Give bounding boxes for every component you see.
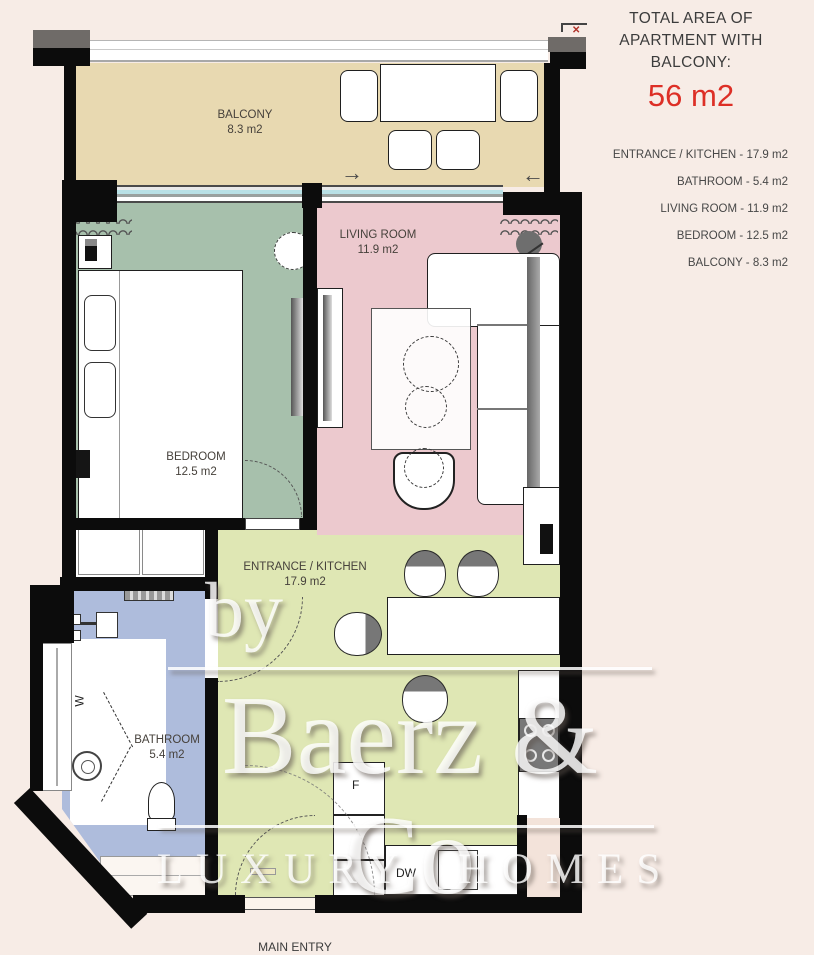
coffee-table-large: [403, 336, 459, 392]
bedroom-wardrobe: [291, 298, 303, 416]
bedroom-label: BEDROOM12.5 m2: [146, 450, 246, 480]
wall-kitchen-left-upper: [205, 527, 218, 599]
main-entry-label: MAIN ENTRY: [225, 940, 365, 954]
washer-label: W: [73, 695, 87, 706]
wall-kitchen-left-lower: [205, 678, 218, 897]
room-list-item: ENTRANCE / KITCHEN - 17.9 m2: [560, 142, 788, 169]
summary-title-line-2: APARTMENT WITH: [585, 30, 797, 52]
fridge-label: F: [352, 778, 359, 792]
hall-closet: [76, 527, 206, 577]
bedroom-door-opening: [245, 518, 300, 530]
shower-drain: [72, 751, 102, 781]
wall-strip-bottom-right: [517, 815, 527, 897]
bathroom-door-opening: [205, 599, 218, 678]
room-list-item: BALCONY - 8.3 m2: [560, 250, 788, 277]
dishwasher: [438, 850, 478, 890]
room-list-item: LIVING ROOM - 11.9 m2: [560, 196, 788, 223]
bedroom-radiator: [76, 450, 90, 478]
sofa-seats: [477, 325, 560, 505]
bar-counter: [387, 597, 560, 655]
bathroom-floor: [62, 577, 205, 862]
wall-bathroom-top: [60, 577, 210, 591]
bathroom-niche-window: [42, 643, 72, 791]
pillow-1: [84, 295, 116, 351]
wall-bottom-left: [133, 895, 245, 913]
summary-title: TOTAL AREA OF APARTMENT WITH BALCONY:: [585, 8, 797, 74]
side-cabinet: [523, 487, 560, 565]
tv-unit: [317, 288, 343, 428]
floor-plan-page: ✕ → ← BEDROOM12.5 m2: [0, 0, 814, 955]
armchair: [393, 452, 455, 510]
sofa-seam-2: [477, 408, 527, 410]
bar-stool-2: [457, 550, 499, 597]
pillow-2: [84, 362, 116, 418]
wall-bath-outer-left: [30, 643, 43, 791]
total-area-value: 56 m2: [585, 78, 797, 114]
wall-bath-outer-corner: [30, 585, 74, 643]
entry-mat: [250, 868, 276, 875]
kitchen-label: ENTRANCE / KITCHEN17.9 m2: [240, 560, 370, 590]
area-summary-panel: TOTAL AREA OF APARTMENT WITH BALCONY: 56…: [0, 0, 814, 300]
bed-headboard-line: [119, 271, 120, 521]
toilet-bowl: [148, 782, 175, 820]
summary-title-line-3: BALCONY:: [585, 52, 797, 74]
summary-title-line-1: TOTAL AREA OF: [585, 8, 797, 30]
toilet-tank: [147, 818, 176, 831]
exterior-niche: [527, 818, 560, 897]
bar-stool-3: [334, 612, 382, 656]
wall-right: [560, 192, 582, 913]
bar-stool-4: [402, 675, 448, 723]
room-area-list: ENTRANCE / KITCHEN - 17.9 m2 BATHROOM - …: [560, 142, 788, 277]
sofa-seam-1: [477, 324, 527, 326]
coffee-table-small: [405, 386, 447, 428]
room-list-item: BATHROOM - 5.4 m2: [560, 169, 788, 196]
room-list-item: BEDROOM - 12.5 m2: [560, 223, 788, 250]
sink-basin: [96, 612, 118, 638]
bar-stool-1: [404, 550, 446, 597]
stove: [519, 718, 559, 772]
main-entry-threshold: [245, 897, 315, 910]
wall-bottom-right: [315, 895, 562, 913]
dishwasher-label: DW: [396, 866, 416, 880]
